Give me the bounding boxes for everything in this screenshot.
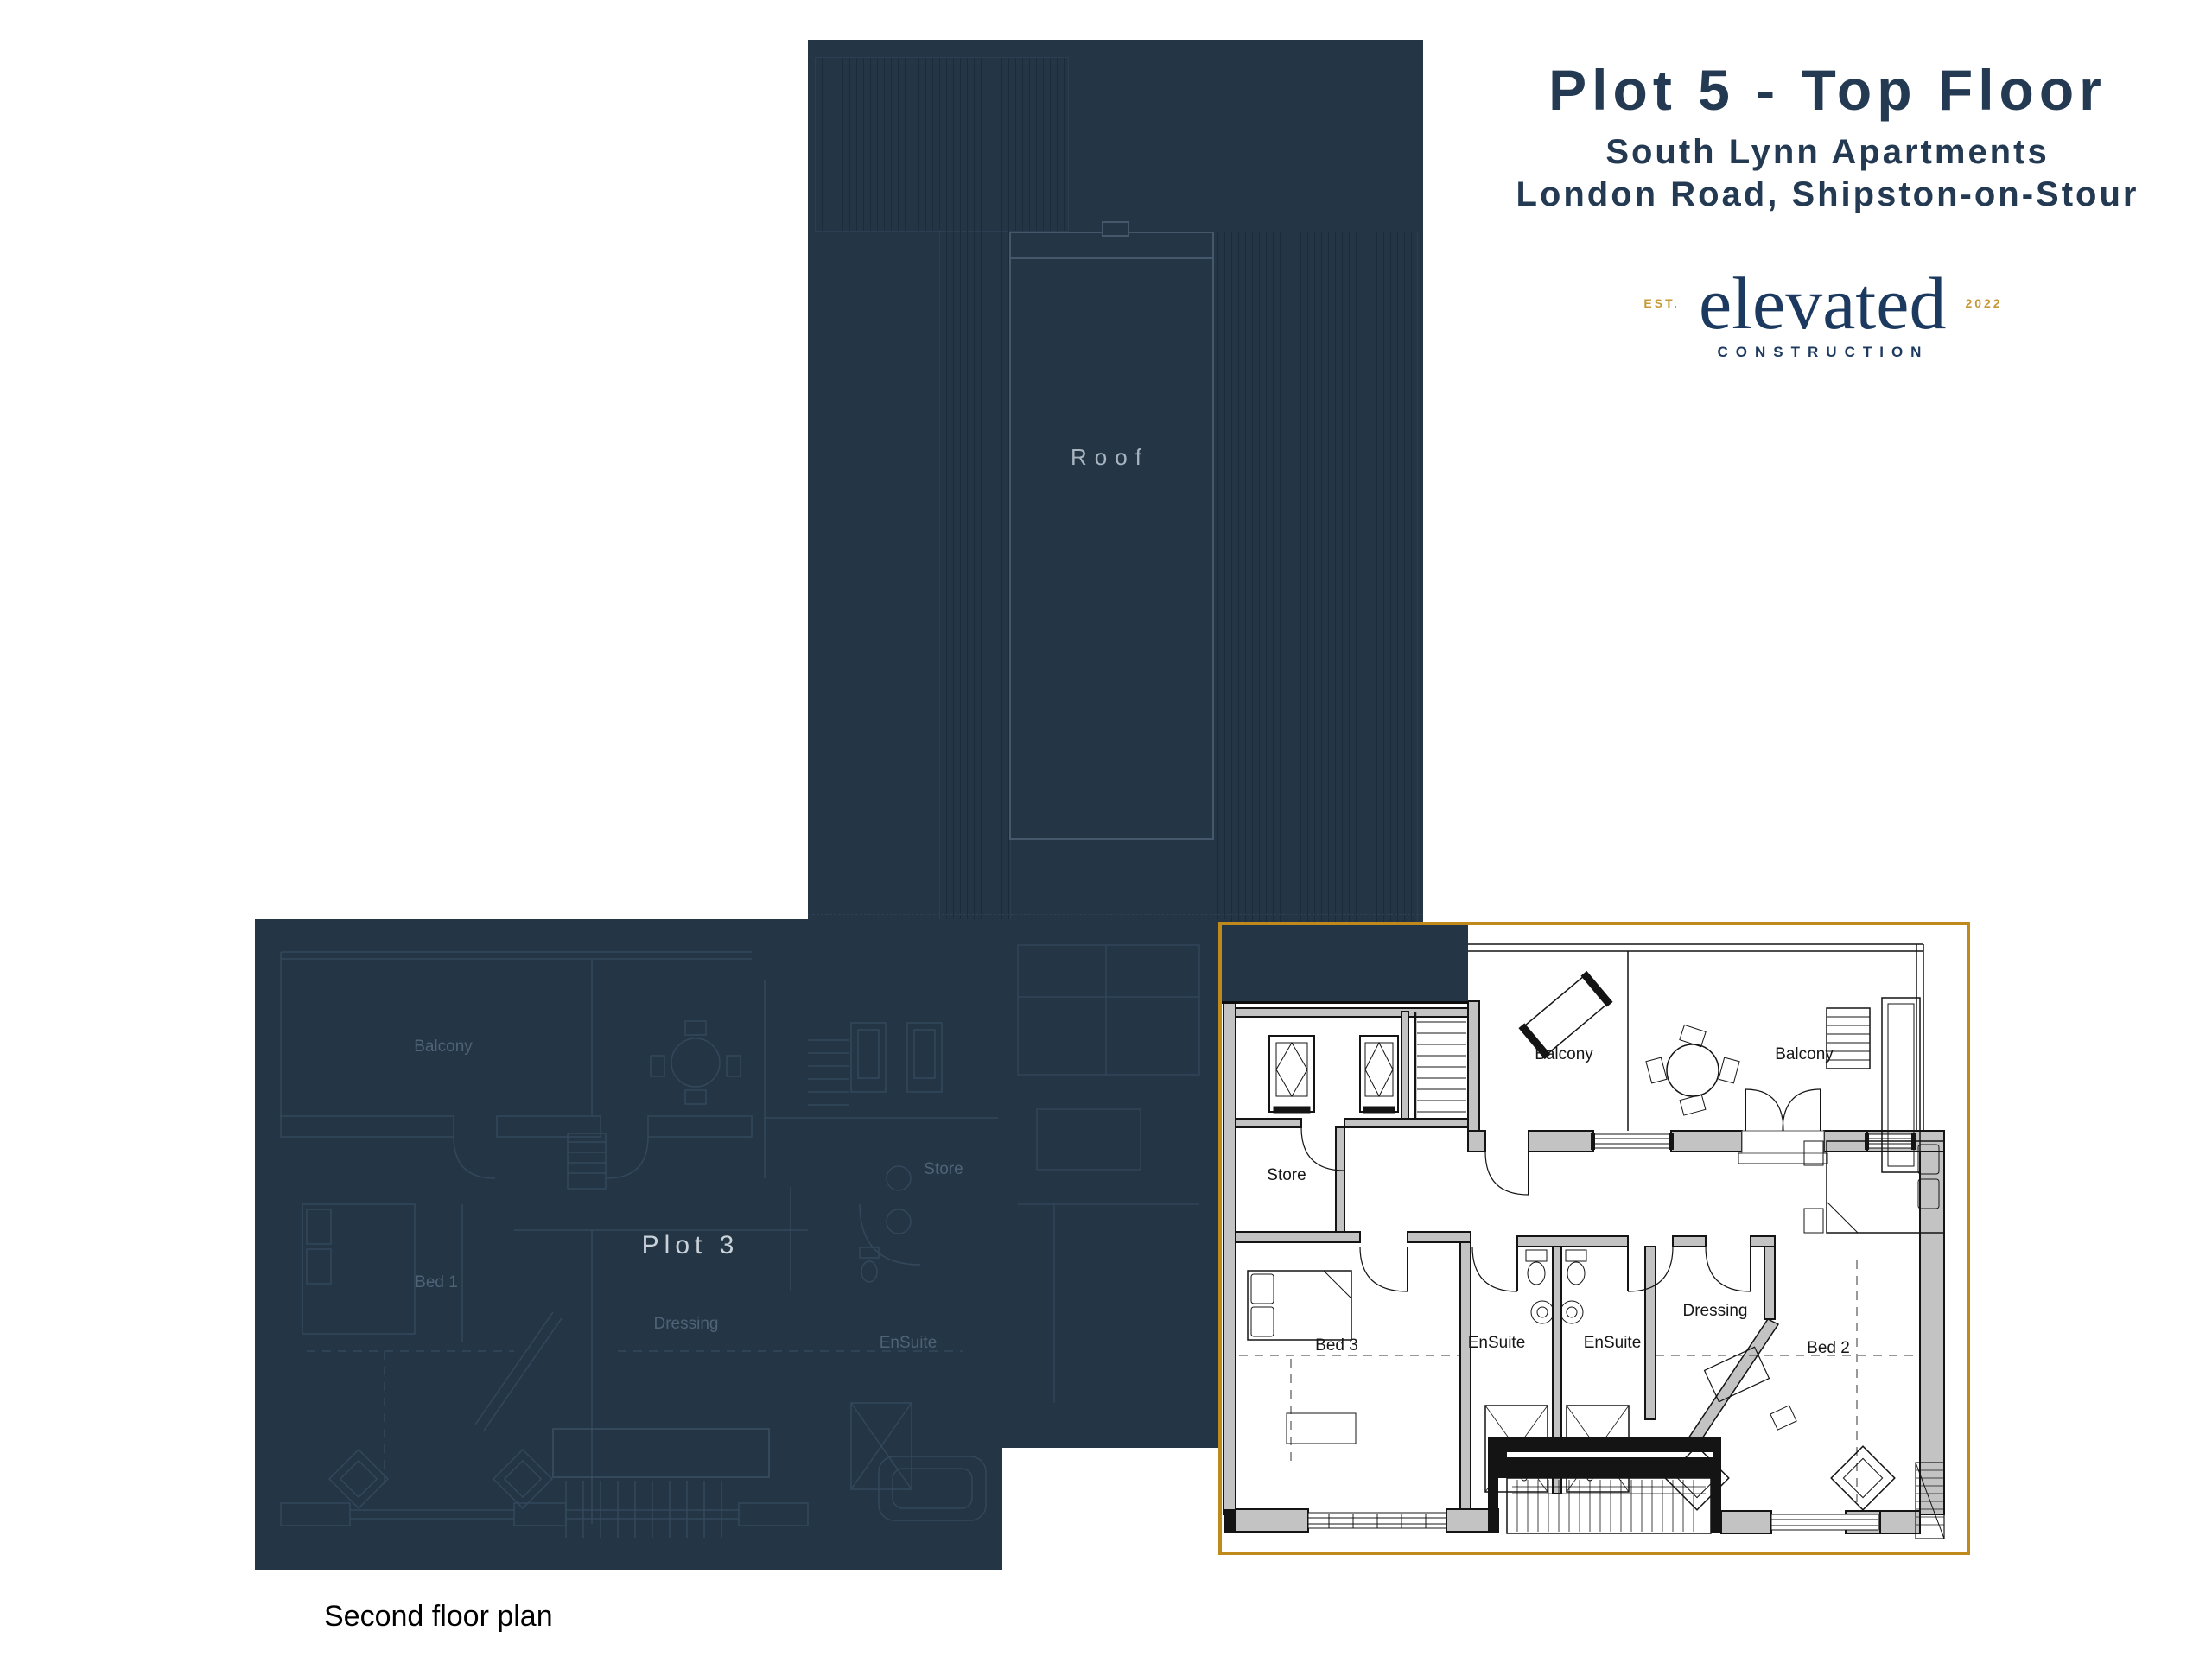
plot3-faint-plan	[255, 919, 1002, 1570]
plan-bed3-label: Bed 3	[1315, 1336, 1358, 1355]
page-canvas: Roof	[0, 0, 2212, 1669]
roof-stripes-left-top	[815, 57, 1069, 232]
plot3-faint-linework	[281, 952, 998, 1538]
roof-panel-ridge-line	[1011, 257, 1212, 259]
plan-balcony-right-label: Balcony	[1775, 1045, 1834, 1064]
plot3-shape: Balcony Store Bed 1 Dressing EnSuite Plo…	[255, 919, 1002, 1570]
title-block: Plot 5 - Top Floor South Lynn Apartments…	[1400, 57, 2212, 214]
connector-faint-lines	[1002, 919, 1225, 1448]
roof-dashed-baseline	[808, 914, 1423, 915]
plot3-ensuite-label: EnSuite	[880, 1334, 938, 1353]
page-title: Plot 5 - Top Floor	[1400, 57, 2212, 123]
plan-linework	[1222, 925, 1967, 1552]
plan-dressing-label: Dressing	[1683, 1302, 1748, 1321]
bedroom-furniture	[1248, 1141, 1944, 1444]
lift-icons	[1269, 1036, 1398, 1113]
roof-stripes-right	[1211, 232, 1418, 931]
table-chairs-icon	[1646, 1025, 1739, 1115]
page-subtitle-2: London Road, Shipston-on-Stour	[1400, 175, 2212, 214]
plan-navy-overlap	[1222, 925, 1468, 1004]
rooflight-hatch	[1507, 1478, 1711, 1533]
connector-shape	[1002, 919, 1225, 1448]
logo-year-label: 2022	[1965, 296, 2002, 310]
plot3-balcony-label: Balcony	[414, 1038, 473, 1057]
page-subtitle-1: South Lynn Apartments	[1400, 133, 2212, 172]
plan-ensuite-left-label: EnSuite	[1468, 1334, 1526, 1353]
plan-highlight-box: Balcony Balcony Store Bed 3 EnSuite EnSu…	[1218, 922, 1970, 1555]
bed3-icon	[1248, 1271, 1356, 1444]
logo-tagline: CONSTRUCTION	[1581, 344, 2065, 361]
roof-stripes-left-column	[939, 230, 1011, 930]
company-logo: EST. elevated 2022 CONSTRUCTION	[1581, 266, 2065, 361]
plan-store-label: Store	[1267, 1166, 1306, 1185]
plan-balcony-left-label: Balcony	[1535, 1045, 1593, 1064]
plot3-bed1-label: Bed 1	[415, 1273, 458, 1292]
roof-vent-notch	[1102, 221, 1129, 237]
logo-est-label: EST.	[1643, 296, 1680, 310]
logo-name: elevated	[1699, 266, 1946, 340]
plot3-store-label: Store	[924, 1160, 963, 1179]
roof-shape: Roof	[808, 40, 1423, 930]
roof-label: Roof	[1009, 444, 1211, 471]
plot3-dressing-label: Dressing	[654, 1315, 719, 1334]
floor-plan-caption: Second floor plan	[324, 1600, 553, 1634]
stairs-icon	[1415, 1012, 1466, 1119]
plan-bed2-label: Bed 2	[1807, 1339, 1850, 1358]
roof-flat-panel	[1009, 232, 1214, 840]
plot3-title-label: Plot 3	[642, 1231, 740, 1260]
plan-ensuite-right-label: EnSuite	[1584, 1334, 1642, 1353]
